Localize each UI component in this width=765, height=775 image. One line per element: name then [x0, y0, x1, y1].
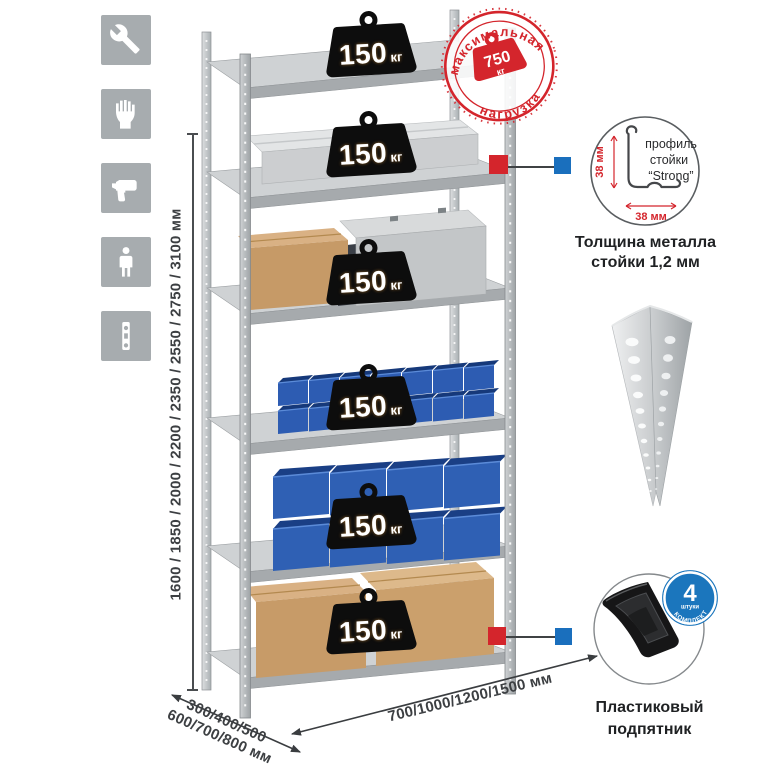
foot-caption: Пластиковый подпятник: [562, 697, 737, 741]
wrench-icon: [101, 15, 151, 65]
bottom-dimension-lines: [140, 630, 630, 765]
shelf-load-badge-5: 150кг: [320, 479, 420, 555]
load-value: 150: [338, 390, 388, 424]
profile-callout-red-square: [489, 155, 508, 174]
load-unit: кг: [390, 521, 403, 537]
height-dimension-line: [192, 134, 194, 690]
level-icon: [101, 311, 151, 361]
gloves-icon: [101, 89, 151, 139]
load-unit: кг: [390, 49, 403, 65]
product-infographic: { "colors": { "accent_red": "#d4252c", "…: [0, 0, 765, 765]
load-unit: кг: [390, 149, 403, 165]
profile-vdim-label: 38 мм: [594, 146, 606, 178]
load-value: 150: [338, 137, 388, 171]
shelf-load-badge-3: 150кг: [320, 235, 420, 311]
profile-text-1: профиль: [645, 137, 697, 151]
profile-text-3: “Strong”: [648, 169, 693, 183]
profile-detail-circle: 38 мм 38 мм профиль стойки “Strong”: [570, 96, 720, 246]
quantity-value: 4: [683, 580, 697, 607]
profile-callout-blue-square: [554, 157, 571, 174]
load-value: 150: [338, 509, 388, 543]
drill-icon: [101, 163, 151, 213]
load-unit: кг: [390, 402, 403, 418]
post-profile-image: [592, 294, 717, 529]
load-value: 150: [338, 37, 388, 71]
height-dimension-label: 1600 / 1850 / 2000 / 2200 / 2350 / 2550 …: [168, 170, 185, 640]
shelf-load-badge-1: 150кг: [320, 7, 420, 83]
profile-caption: Толщина металла стойки 1,2 мм: [558, 233, 733, 273]
profile-hdim-label: 38 мм: [635, 211, 667, 223]
load-unit: кг: [390, 277, 403, 293]
quantity-badge: 4 штуки В КОМПЛЕКТЕ: [662, 570, 718, 626]
profile-text-2: стойки: [650, 153, 688, 167]
shelf-load-badge-2: 150кг: [320, 107, 420, 183]
load-value: 150: [338, 265, 388, 299]
shelf-load-badge-4: 150кг: [320, 360, 420, 436]
quantity-unit: штуки: [681, 605, 699, 611]
profile-callout-line: [506, 166, 556, 168]
height-dimension-tick-top: [187, 133, 198, 135]
person-icon: [101, 237, 151, 287]
